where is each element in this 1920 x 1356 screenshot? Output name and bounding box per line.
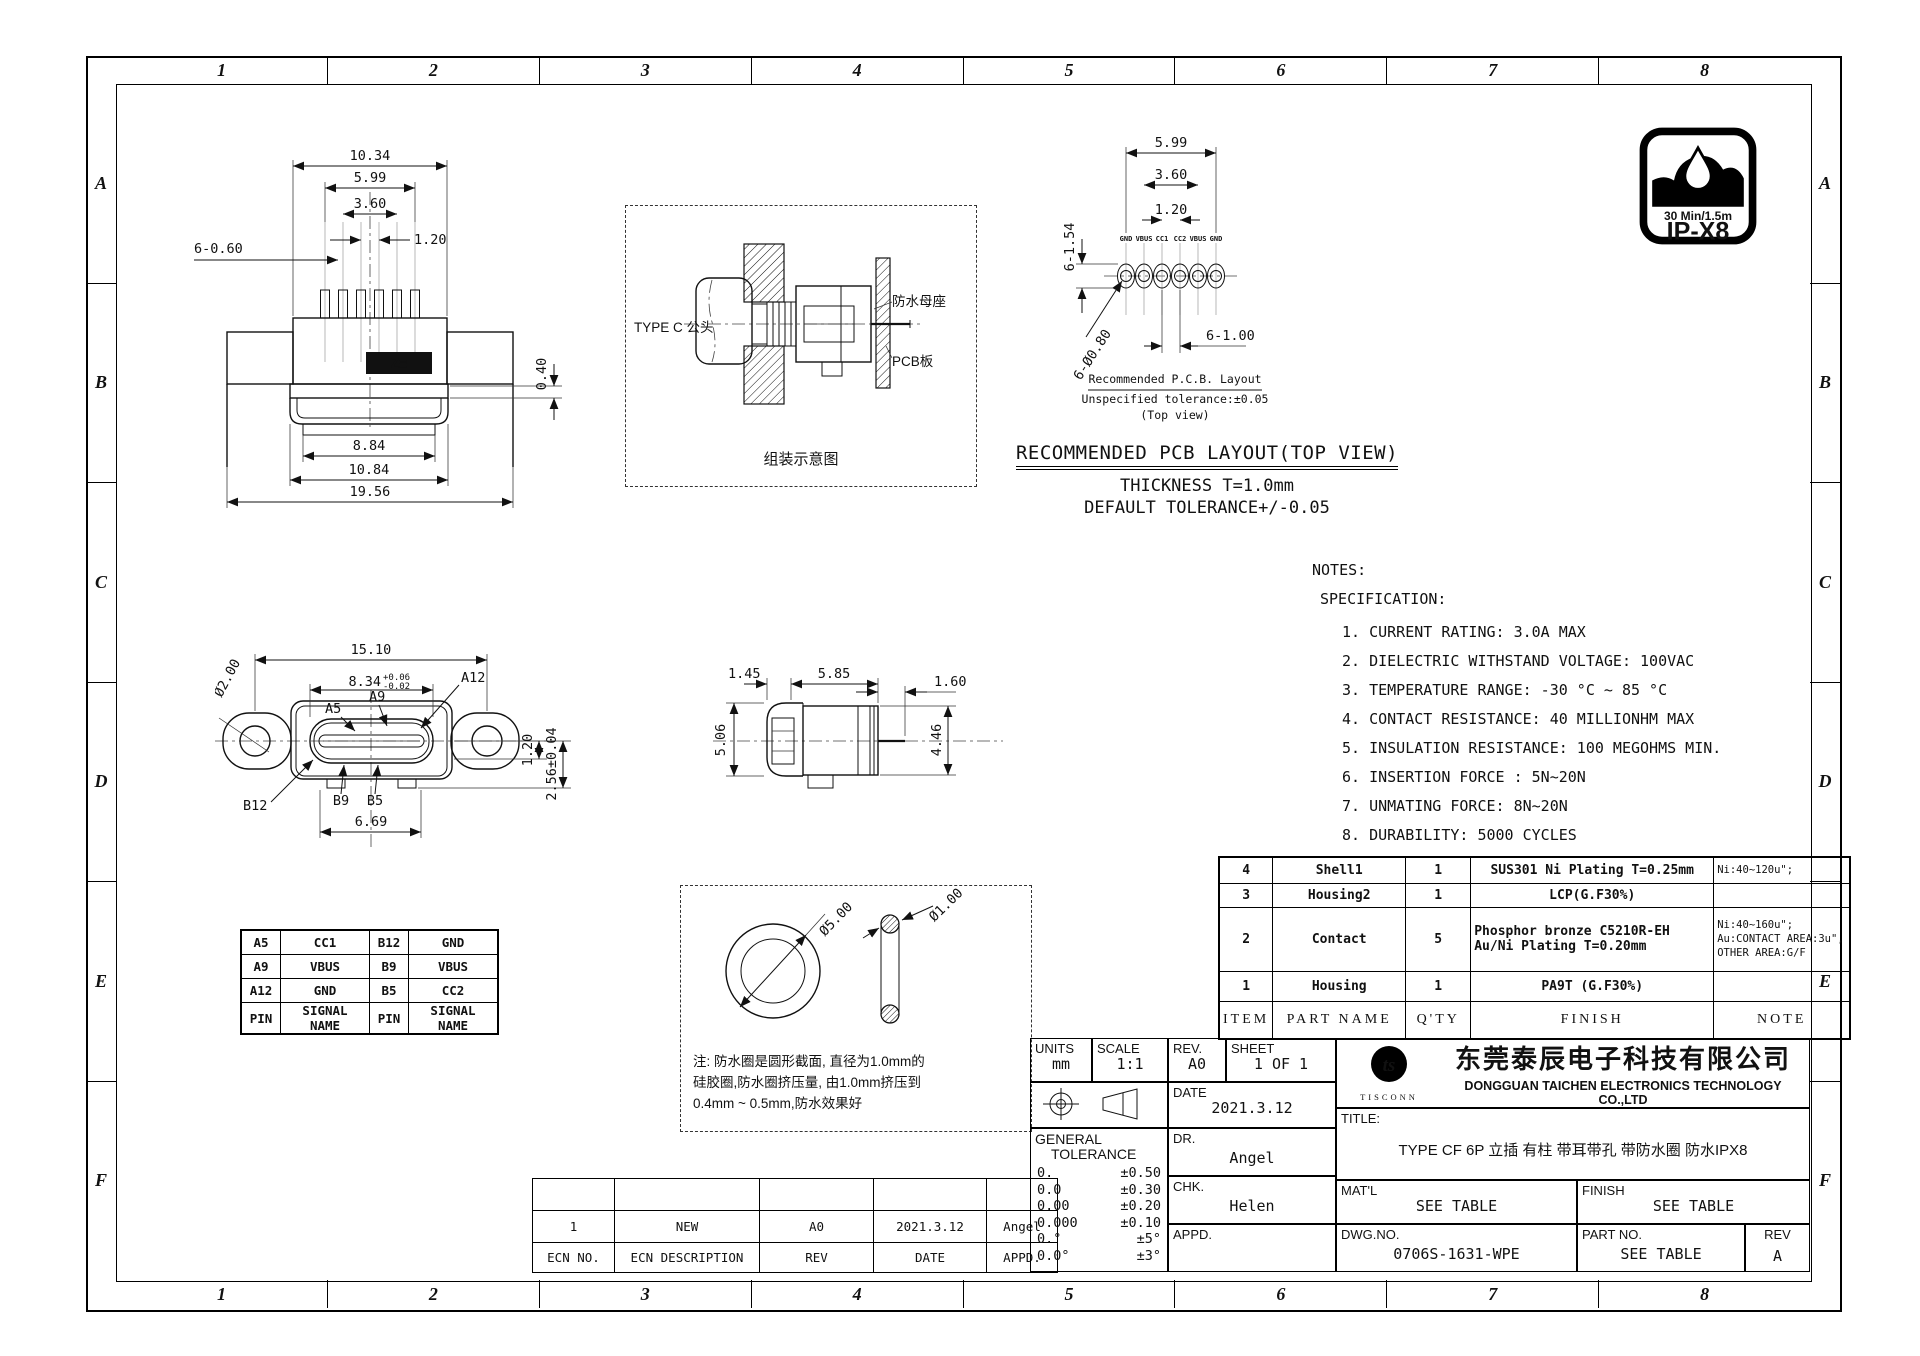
pin-assignment-table: A5 CC1 B12 GND A9 VBUS B9 VBUS A12 GND B… xyxy=(240,929,499,1035)
bom-qty: 1 xyxy=(1406,857,1471,883)
bom-note xyxy=(1714,883,1851,907)
ecn-header: ECN NO. xyxy=(533,1243,615,1273)
part-value: SEE TABLE xyxy=(1578,1245,1744,1263)
finish-cell: FINISH SEE TABLE xyxy=(1577,1180,1810,1224)
zone-label: C xyxy=(1810,483,1840,683)
finish-label: FINISH xyxy=(1582,1183,1625,1198)
zone-label: 2 xyxy=(328,56,540,84)
bom-row: 1 Housing 1 PA9T (G.F30%) xyxy=(1219,971,1850,1001)
part-label: PART NO. xyxy=(1582,1227,1642,1242)
bom-finish: SUS301 Ni Plating T=0.25mm xyxy=(1471,857,1714,883)
pcb-layout-heading: RECOMMENDED PCB LAYOUT(TOP VIEW) THICKNE… xyxy=(1002,442,1412,518)
pcb-heading-tolerance: DEFAULT TOLERANCE+/-0.05 xyxy=(1002,498,1412,518)
ecn-row: 1 NEW A0 2021.3.12 Angel xyxy=(533,1211,1058,1243)
bom-note: Ni:40~160u"; Au:CONTACT AREA:3u", OTHER … xyxy=(1714,907,1851,971)
dim-5.85: 5.85 xyxy=(818,666,851,682)
note-item: 6. INSERTION FORCE : 5N~20N xyxy=(1342,763,1810,792)
dim-oring-outer: Ø5.00 xyxy=(816,899,856,939)
bom-note-line: OTHER AREA:G/F xyxy=(1717,946,1846,960)
pin-cell: B12 xyxy=(370,930,409,955)
matl-label: MAT'L xyxy=(1341,1183,1377,1198)
rev-label: REV. xyxy=(1173,1041,1202,1056)
border-zone-columns-bottom: 1 2 3 4 5 6 7 8 xyxy=(116,1280,1810,1308)
pcb-caption-1: Recommended P.C.B. Layout xyxy=(1088,372,1261,386)
note-item: 3. TEMPERATURE RANGE: -30 °C ~ 85 °C xyxy=(1342,676,1810,705)
dim-10.84: 10.84 xyxy=(349,462,390,478)
ecn-header: ECN DESCRIPTION xyxy=(615,1243,760,1273)
company-cell: ts TISCONN 东莞泰辰电子科技有限公司 DONGGUAN TAICHEN… xyxy=(1336,1038,1810,1108)
shell-marking: Z≡ xyxy=(391,356,408,372)
assembly-caption: 组装示意图 xyxy=(626,448,976,469)
bom-header: ITEM xyxy=(1219,1001,1273,1039)
dim-19.56: 19.56 xyxy=(350,484,391,500)
scale-cell: SCALE 1:1 xyxy=(1092,1038,1168,1082)
dim-1.60: 1.60 xyxy=(934,674,967,690)
tolerance-title-1: GENERAL xyxy=(1035,1131,1102,1147)
pcb-label: PCB板 xyxy=(892,350,933,370)
bom-note: Ni:40~120u"; xyxy=(1714,857,1851,883)
bom-part: Contact xyxy=(1273,907,1406,971)
notes-block: NOTES: SPECIFICATION: 1. CURRENT RATING:… xyxy=(1312,556,1810,850)
rev2-label: REV xyxy=(1746,1227,1809,1242)
bom-header-row: ITEM PART NAME Q'TY FINISH NOTE xyxy=(1219,1001,1850,1039)
receptacle-label: 防水母座 xyxy=(892,290,946,310)
dim-6.69: 6.69 xyxy=(355,814,388,830)
zone-label: D xyxy=(86,683,116,883)
zone-label: 2 xyxy=(328,1280,540,1308)
rev2-cell: REV A xyxy=(1745,1224,1810,1272)
ecn-header: DATE xyxy=(874,1243,987,1273)
date-value: 2021.3.12 xyxy=(1169,1099,1335,1117)
pin-cell: B9 xyxy=(370,955,409,979)
zone-label: 5 xyxy=(964,1280,1176,1308)
ecn-header: REV xyxy=(760,1243,874,1273)
bom-row: 4 Shell1 1 SUS301 Ni Plating T=0.25mm Ni… xyxy=(1219,857,1850,883)
zone-label: B xyxy=(1810,284,1840,484)
rev-cell: REV. A0 xyxy=(1168,1038,1226,1082)
border-zone-rows-right: A B C D E F xyxy=(1810,84,1840,1280)
ecn-cell xyxy=(874,1179,987,1211)
zone-label: 6 xyxy=(1175,1280,1387,1308)
pad-label: GND xyxy=(1210,235,1223,243)
drawing-title: TYPE CF 6P 立插 有柱 带耳带孔 带防水圈 防水IPX8 xyxy=(1337,1139,1809,1160)
bom-qty: 1 xyxy=(1406,883,1471,907)
plug-label: TYPE C 公头 xyxy=(634,316,714,336)
units-cell: UNITS mm xyxy=(1030,1038,1092,1082)
oring-note-line1: 注: 防水圈是圆形截面, 直径为1.0mm的 xyxy=(693,1054,925,1069)
title-cell: TITLE: TYPE CF 6P 立插 有柱 带耳带孔 带防水圈 防水IPX8 xyxy=(1336,1108,1810,1180)
ecn-no: 1 xyxy=(533,1211,615,1243)
oring-detail-box: Ø5.00 Ø1.00 注: 防水圈是圆形截面, 直径为1.0mm的 硅胶圈,防… xyxy=(680,885,1032,1132)
ecn-row xyxy=(533,1179,1058,1211)
note-item: 5. INSULATION RESISTANCE: 100 MEGOHMS MI… xyxy=(1342,734,1810,763)
tolerance-grid: 0.±0.50 0.0±0.30 0.00±0.20 0.000±0.10 0.… xyxy=(1037,1165,1161,1264)
bom-item: 4 xyxy=(1219,857,1273,883)
zone-label: F xyxy=(86,1082,116,1281)
dim-8.34: 8.34 xyxy=(348,674,381,690)
zone-label: 5 xyxy=(964,56,1176,84)
bom-finish-line: Phosphor bronze C5210R-EH xyxy=(1474,924,1710,939)
zone-label: 1 xyxy=(116,56,328,84)
zone-label: 7 xyxy=(1387,56,1599,84)
dim-15.10: 15.10 xyxy=(351,642,392,658)
bom-qty: 5 xyxy=(1406,907,1471,971)
ecn-date: 2021.3.12 xyxy=(874,1211,987,1243)
zone-label: A xyxy=(1810,84,1840,284)
signal-header-cell: SIGNAL NAME xyxy=(281,1003,370,1035)
table-row: A5 CC1 B12 GND xyxy=(241,930,498,955)
dim-0.40: 0.40 xyxy=(534,358,550,391)
zone-label: 4 xyxy=(752,56,964,84)
appd-label: APPD. xyxy=(1173,1227,1212,1242)
zone-label: 3 xyxy=(540,1280,752,1308)
ipx8-water-icon: 30 Min/1.5m IP-X8 xyxy=(1638,126,1758,246)
dr-value: Angel xyxy=(1169,1149,1335,1167)
bom-finish-line: Au/Ni Plating T=0.20mm xyxy=(1474,939,1710,954)
oring-detail-drawing: Ø5.00 Ø1.00 注: 防水圈是圆形截面, 直径为1.0mm的 硅胶圈,防… xyxy=(681,886,1028,1128)
date-cell: DATE 2021.3.12 xyxy=(1168,1082,1336,1128)
pin-header-cell: PIN xyxy=(241,1003,281,1035)
pcb-caption-3: (Top view) xyxy=(1140,408,1209,422)
notes-title: NOTES: xyxy=(1312,556,1810,585)
dim-5.06: 5.06 xyxy=(713,724,729,757)
bom-finish: LCP(G.F30%) xyxy=(1471,883,1714,907)
ip-rating: IP-X8 xyxy=(1667,217,1730,245)
pin-callout-a5: A5 xyxy=(325,701,341,717)
bom-item: 1 xyxy=(1219,971,1273,1001)
table-row: A12 GND B5 CC2 xyxy=(241,979,498,1003)
dim-ear-hole: Ø2.00 xyxy=(215,656,244,699)
sheet-cell: SHEET 1 OF 1 xyxy=(1226,1038,1336,1082)
note-item: 2. DIELECTRIC WITHSTAND VOLTAGE: 100VAC xyxy=(1342,647,1810,676)
ecn-rev: A0 xyxy=(760,1211,874,1243)
ipx8-waterproof-badge: 30 Min/1.5m IP-X8 xyxy=(1638,126,1758,246)
bom-header: Q'TY xyxy=(1406,1001,1471,1039)
zone-label: A xyxy=(86,84,116,284)
zone-label: 7 xyxy=(1387,1280,1599,1308)
company-name-cn: 东莞泰辰电子科技有限公司 xyxy=(1439,1039,1807,1076)
dim-1.20: 1.20 xyxy=(1155,202,1188,218)
zone-label: F xyxy=(1810,1082,1840,1281)
part-no-cell: PART NO. SEE TABLE xyxy=(1577,1224,1745,1272)
connector-front-view-drawing: 15.10 8.34 +0.06 -0.02 A12 A5 A9 Ø2.00 B… xyxy=(215,618,615,888)
matl-value: SEE TABLE xyxy=(1337,1197,1576,1215)
dim-6-1.00: 6-1.00 xyxy=(1206,328,1255,344)
bom-row: 3 Housing2 1 LCP(G.F30%) xyxy=(1219,883,1850,907)
pad-label: CC1 xyxy=(1156,235,1169,243)
logo-text: TISCONN xyxy=(1339,1092,1439,1102)
pcb-caption-2: Unspecified tolerance:±0.05 xyxy=(1082,392,1269,406)
note-item: 4. CONTACT RESISTANCE: 40 MILLIONHM MAX xyxy=(1342,705,1810,734)
pcb-layout-drawing: GND VBUS CC1 CC2 VBUS GND 5.99 3.60 1.20… xyxy=(1060,125,1430,440)
bom-header: FINISH xyxy=(1471,1001,1714,1039)
bom-finish: PA9T (G.F30%) xyxy=(1471,971,1714,1001)
pin-callout-b12: B12 xyxy=(243,798,267,814)
oring-note-line3: 0.4mm ~ 0.5mm,防水效果好 xyxy=(693,1096,862,1111)
pcb-heading-title: RECOMMENDED PCB LAYOUT(TOP VIEW) xyxy=(1016,442,1398,470)
drawing-sheet: 1 2 3 4 5 6 7 8 1 2 3 4 5 6 7 8 A B C D … xyxy=(0,0,1920,1356)
scale-value: 1:1 xyxy=(1093,1055,1167,1073)
signal-cell: VBUS xyxy=(281,955,370,979)
bom-header: PART NAME xyxy=(1273,1001,1406,1039)
tolerance-title-2: TOLERANCE xyxy=(1051,1146,1136,1162)
bom-item: 2 xyxy=(1219,907,1273,971)
general-tolerance-cell: GENERAL TOLERANCE 0.±0.50 0.0±0.30 0.00±… xyxy=(1030,1128,1168,1272)
date-label: DATE xyxy=(1173,1085,1207,1100)
ecn-cell xyxy=(533,1179,615,1211)
pin-cell: B5 xyxy=(370,979,409,1003)
title-label: TITLE: xyxy=(1341,1111,1380,1126)
dim-2.56: 2.56±0.04 xyxy=(544,727,560,800)
bom-finish: Phosphor bronze C5210R-EH Au/Ni Plating … xyxy=(1471,907,1714,971)
dim-5.99: 5.99 xyxy=(1155,135,1188,151)
dim-3.60: 3.60 xyxy=(354,196,387,212)
table-row: PIN SIGNAL NAME PIN SIGNAL NAME xyxy=(241,1003,498,1035)
company-name-en: DONGGUAN TAICHEN ELECTRONICS TECHNOLOGY … xyxy=(1439,1079,1807,1107)
zone-label: C xyxy=(86,483,116,683)
pad-label: CC2 xyxy=(1174,235,1187,243)
pin-header-cell: PIN xyxy=(370,1003,409,1035)
ecn-revision-table: 1 NEW A0 2021.3.12 Angel ECN NO. ECN DES… xyxy=(532,1178,1058,1273)
dim-1.20: 1.20 xyxy=(414,232,447,248)
dim-6-0.60: 6-0.60 xyxy=(194,241,243,257)
title-block: UNITS mm SCALE 1:1 REV. A0 SHEET 1 OF 1 … xyxy=(1030,1038,1810,1272)
company-logo: ts TISCONN xyxy=(1339,1044,1439,1102)
projection-cell xyxy=(1030,1082,1168,1128)
zone-label: 3 xyxy=(540,56,752,84)
signal-header-cell: SIGNAL NAME xyxy=(409,1003,499,1035)
third-angle-projection-icon xyxy=(1031,1083,1165,1125)
finish-value: SEE TABLE xyxy=(1578,1197,1809,1215)
pin-callout-a9: A9 xyxy=(369,689,385,705)
note-item: 8. DURABILITY: 5000 CYCLES xyxy=(1342,821,1810,850)
bom-part: Housing xyxy=(1273,971,1406,1001)
assembly-diagram-box: TYPE C 公头 防水母座 PCB板 组装示意图 xyxy=(625,205,977,487)
note-item: 1. CURRENT RATING: 3.0A MAX xyxy=(1342,618,1810,647)
border-zone-rows-left: A B C D E F xyxy=(86,84,116,1280)
bom-note-line: Ni:40~160u"; xyxy=(1717,918,1846,932)
bom-header: NOTE xyxy=(1714,1001,1851,1039)
dwg-value: 0706S-1631-WPE xyxy=(1337,1245,1576,1263)
chk-value: Helen xyxy=(1169,1197,1335,1215)
pad-label: VBUS xyxy=(1136,235,1153,243)
scale-label: SCALE xyxy=(1097,1041,1140,1056)
dim-8.84: 8.84 xyxy=(353,438,386,454)
zone-label: 4 xyxy=(752,1280,964,1308)
dim-4.46: 4.46 xyxy=(929,724,945,757)
pin-callout-b5: B5 xyxy=(367,793,383,809)
sheet-label: SHEET xyxy=(1231,1041,1274,1056)
bom-note-line: Au:CONTACT AREA:3u", xyxy=(1717,932,1846,946)
pcb-heading-thickness: THICKNESS T=1.0mm xyxy=(1002,476,1412,496)
pin-cell: A9 xyxy=(241,955,281,979)
dim-1.45: 1.45 xyxy=(728,666,761,682)
notes-subtitle: SPECIFICATION: xyxy=(1312,585,1810,614)
pin-callout-a12: A12 xyxy=(461,670,485,686)
checked-by-cell: CHK. Helen xyxy=(1168,1176,1336,1224)
signal-cell: VBUS xyxy=(409,955,499,979)
bill-of-materials-table: 4 Shell1 1 SUS301 Ni Plating T=0.25mm Ni… xyxy=(1218,856,1851,1040)
signal-cell: GND xyxy=(281,979,370,1003)
tisconn-logo-icon: ts xyxy=(1366,1044,1412,1088)
dim-5.99: 5.99 xyxy=(354,170,387,186)
bom-row: 2 Contact 5 Phosphor bronze C5210R-EH Au… xyxy=(1219,907,1850,971)
signal-cell: GND xyxy=(409,930,499,955)
dim-oring-cross: Ø1.00 xyxy=(926,886,966,925)
drawn-by-cell: DR. Angel xyxy=(1168,1128,1336,1176)
chk-label: CHK. xyxy=(1173,1179,1204,1194)
zone-label: D xyxy=(1810,683,1840,883)
rev2-value: A xyxy=(1746,1247,1809,1265)
border-zone-columns-top: 1 2 3 4 5 6 7 8 xyxy=(116,56,1810,84)
material-cell: MAT'L SEE TABLE xyxy=(1336,1180,1577,1224)
pin-callout-b9: B9 xyxy=(333,793,349,809)
bom-qty: 1 xyxy=(1406,971,1471,1001)
dwg-label: DWG.NO. xyxy=(1341,1227,1400,1242)
zone-label: B xyxy=(86,284,116,484)
ecn-description: NEW xyxy=(615,1211,760,1243)
ecn-cell xyxy=(760,1179,874,1211)
zone-label: 8 xyxy=(1599,1280,1810,1308)
dim-3.60: 3.60 xyxy=(1155,167,1188,183)
table-row: A9 VBUS B9 VBUS xyxy=(241,955,498,979)
connector-top-view-drawing: Z≡ 10.34 5.99 3.60 1.20 6-0.60 0.40 8.84… xyxy=(170,122,600,542)
assembly-diagram xyxy=(626,206,976,486)
svg-text:ts: ts xyxy=(1383,1055,1396,1076)
dwg-no-cell: DWG.NO. 0706S-1631-WPE xyxy=(1336,1224,1577,1272)
signal-cell: CC2 xyxy=(409,979,499,1003)
zone-label: E xyxy=(86,882,116,1082)
pad-label: GND xyxy=(1120,235,1133,243)
dim-8.34-tol-dn: -0.02 xyxy=(383,682,410,692)
connector-side-view-drawing: 5.06 1.45 5.85 1.60 4.46 xyxy=(698,648,1038,833)
zone-label: 6 xyxy=(1175,56,1387,84)
dim-10.34: 10.34 xyxy=(350,148,391,164)
pin-cell: A5 xyxy=(241,930,281,955)
dim-6-1.54: 6-1.54 xyxy=(1062,223,1078,272)
signal-cell: CC1 xyxy=(281,930,370,955)
bom-item: 3 xyxy=(1219,883,1273,907)
ecn-header-row: ECN NO. ECN DESCRIPTION REV DATE APPD. xyxy=(533,1243,1058,1273)
units-value: mm xyxy=(1031,1055,1091,1073)
sheet-value: 1 OF 1 xyxy=(1227,1055,1335,1073)
pin-cell: A12 xyxy=(241,979,281,1003)
oring-note-line2: 硅胶圈,防水圈挤压量, 由1.0mm挤压到 xyxy=(693,1074,921,1090)
bom-part: Housing2 xyxy=(1273,883,1406,907)
dr-label: DR. xyxy=(1173,1131,1195,1146)
dim-1.20-vert: 1.20 xyxy=(520,734,536,767)
note-item: 7. UNMATING FORCE: 8N~20N xyxy=(1342,792,1810,821)
rev-value: A0 xyxy=(1169,1055,1225,1073)
bom-note xyxy=(1714,971,1851,1001)
approved-by-cell: APPD. xyxy=(1168,1224,1336,1272)
units-label: UNITS xyxy=(1035,1041,1074,1056)
zone-label: 8 xyxy=(1599,56,1810,84)
pad-label: VBUS xyxy=(1190,235,1207,243)
zone-label: 1 xyxy=(116,1280,328,1308)
ecn-cell xyxy=(615,1179,760,1211)
bom-part: Shell1 xyxy=(1273,857,1406,883)
